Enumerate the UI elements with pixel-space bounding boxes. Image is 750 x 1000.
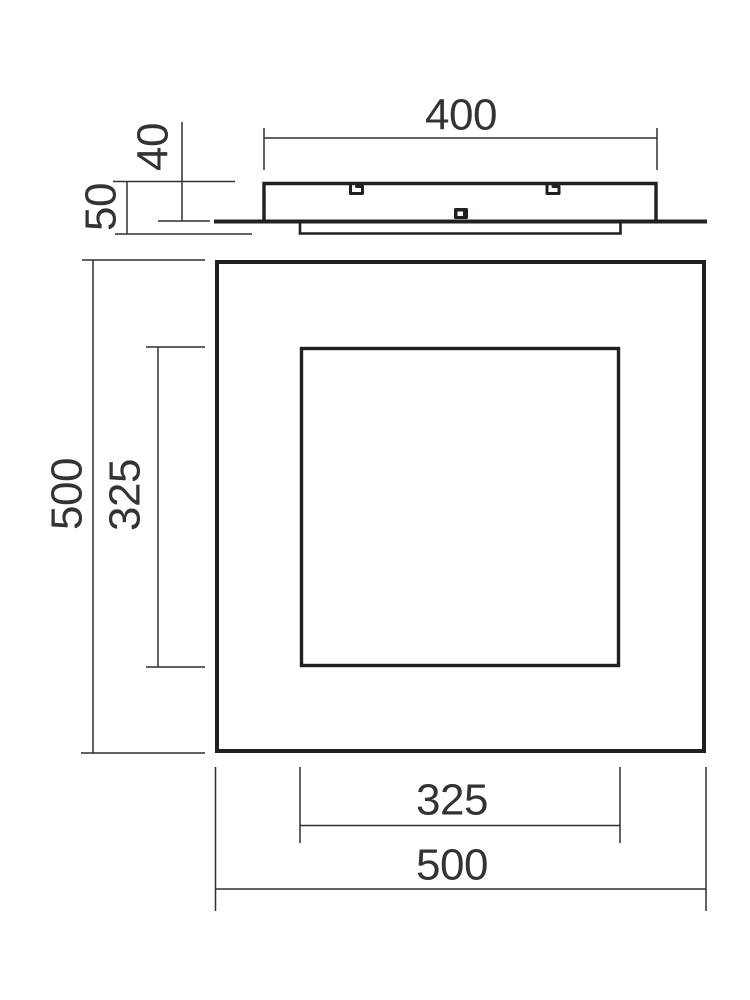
cable-connector-notch — [458, 212, 464, 217]
outer-frame-square — [217, 262, 704, 751]
dim-label-inner-width: 325 — [416, 776, 488, 825]
diffuser-panel-edge — [300, 222, 621, 234]
inner-diffuser-square — [302, 349, 619, 666]
front-view: 500 325 325 500 — [43, 260, 707, 911]
dim-label-inner-height: 325 — [101, 459, 150, 531]
dim-label-outer-height: 500 — [43, 458, 92, 530]
dim-label-total-height: 50 — [77, 183, 126, 231]
technical-drawing-page: 400 40 50 500 325 — [0, 0, 750, 1000]
spring-clip-left — [351, 184, 363, 194]
lamp-dimension-drawing: 400 40 50 500 325 — [0, 0, 750, 1000]
dim-label-body-width: 400 — [425, 91, 497, 140]
side-profile-view: 400 40 50 — [77, 91, 708, 235]
dim-label-body-height: 40 — [129, 123, 178, 171]
spring-clip-right — [547, 184, 559, 194]
dim-label-outer-width: 500 — [416, 841, 488, 890]
